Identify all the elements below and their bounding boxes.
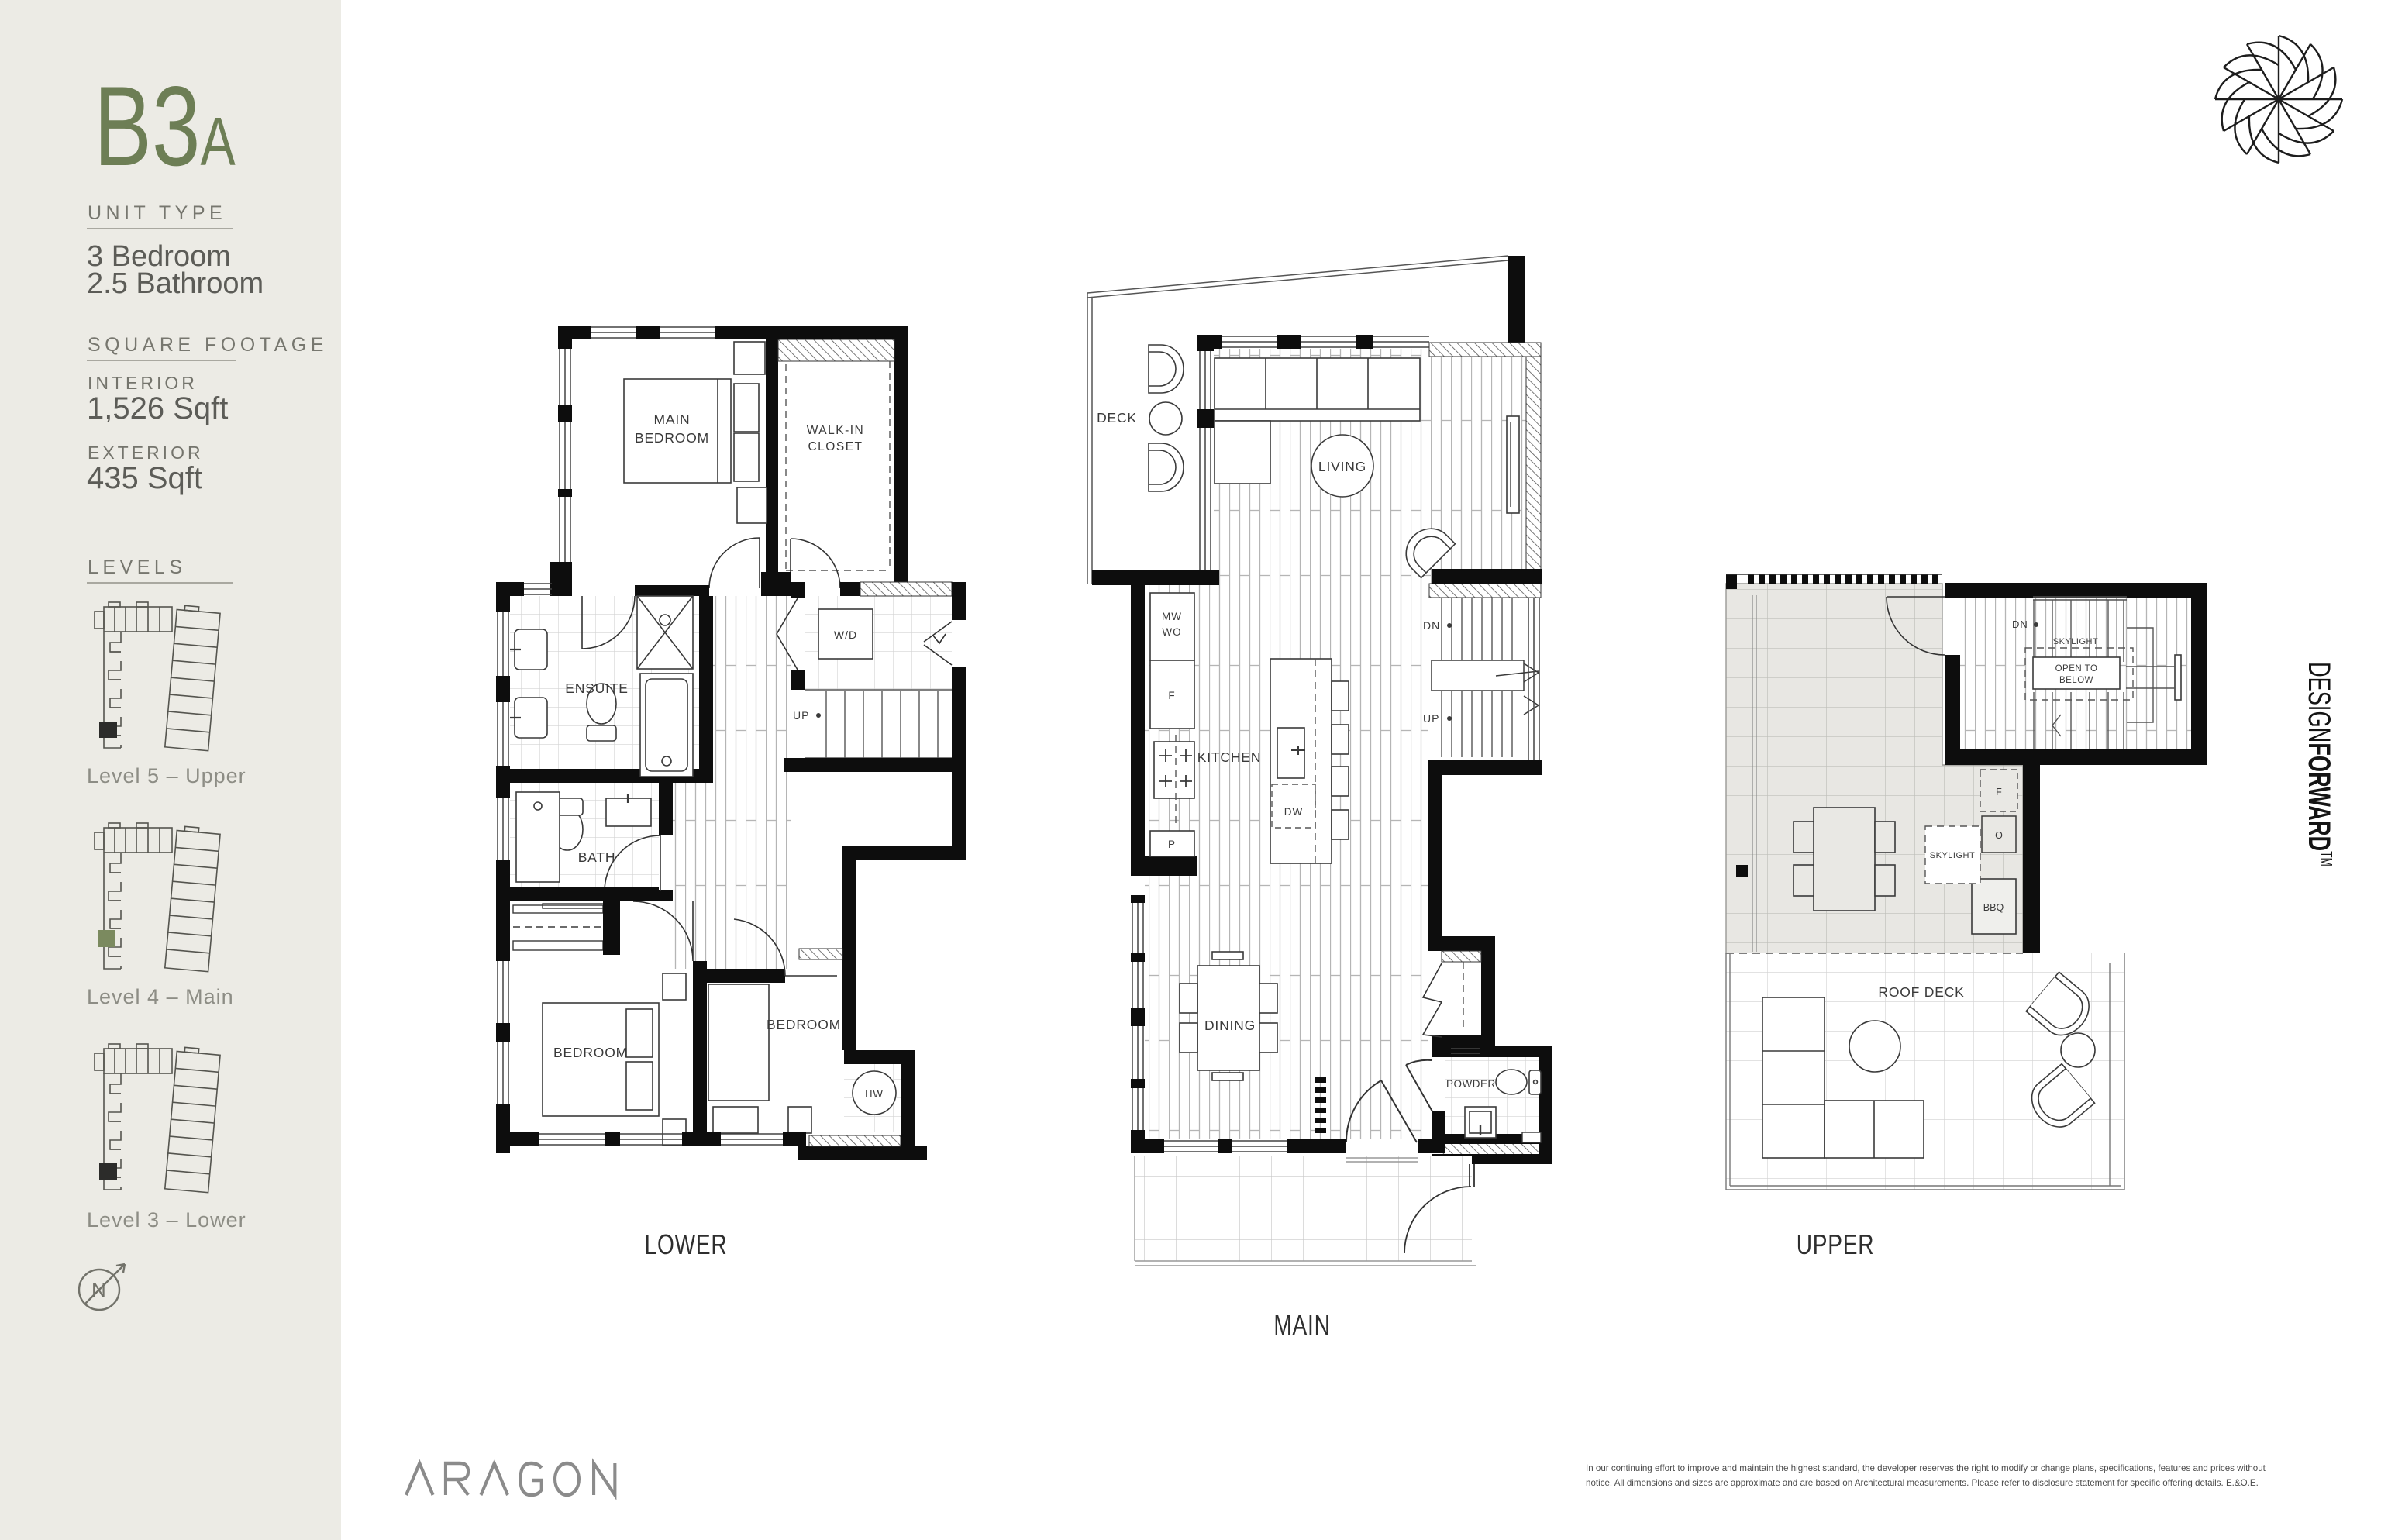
svg-text:BELOW: BELOW (2059, 676, 2093, 685)
svg-text:LIVING: LIVING (1318, 459, 1366, 474)
svg-text:SKYLIGHT: SKYLIGHT (2053, 637, 2098, 646)
svg-text:P: P (1168, 839, 1176, 850)
svg-text:SQUARE FOOTAGE: SQUARE FOOTAGE (88, 334, 328, 356)
svg-text:MAIN: MAIN (654, 412, 691, 427)
svg-text:N: N (91, 1278, 106, 1301)
svg-text:HW: HW (865, 1088, 884, 1100)
svg-text:DESIGNFORWARDTM: DESIGNFORWARDTM (2302, 662, 2336, 866)
svg-text:POWDER: POWDER (1446, 1078, 1496, 1090)
svg-text:DN: DN (1423, 619, 1440, 632)
svg-text:ROOF DECK: ROOF DECK (1878, 984, 1964, 1000)
svg-text:BATH: BATH (578, 849, 616, 865)
svg-text:DINING: DINING (1204, 1018, 1256, 1033)
svg-text:BEDROOM: BEDROOM (767, 1017, 841, 1032)
svg-text:DW: DW (1284, 806, 1304, 818)
svg-text:WALK-IN: WALK-IN (807, 424, 865, 437)
svg-text:notice. All dimensions and siz: notice. All dimensions and sizes are app… (1586, 1478, 2259, 1488)
svg-text:LOWER: LOWER (645, 1229, 728, 1260)
svg-text:EXTERIOR: EXTERIOR (88, 443, 204, 463)
svg-text:F: F (1168, 690, 1175, 701)
svg-text:OPEN TO: OPEN TO (2055, 664, 2098, 674)
svg-text:UNIT TYPE: UNIT TYPE (88, 202, 226, 224)
svg-text:DN: DN (2012, 618, 2028, 630)
svg-text:BEDROOM: BEDROOM (635, 430, 709, 446)
svg-text:2.5 Bathroom: 2.5 Bathroom (87, 267, 264, 300)
svg-text:ENSUITE: ENSUITE (565, 680, 628, 696)
svg-text:UP: UP (793, 709, 809, 722)
svg-text:O: O (1995, 830, 2003, 841)
svg-text:1,526 Sqft: 1,526 Sqft (87, 391, 228, 425)
svg-text:LEVELS: LEVELS (88, 556, 187, 578)
svg-text:BBQ: BBQ (1983, 902, 2004, 913)
svg-text:UPPER: UPPER (1797, 1229, 1875, 1260)
svg-text:KITCHEN: KITCHEN (1197, 749, 1261, 765)
svg-text:Level 3 – Lower: Level 3 – Lower (87, 1208, 246, 1232)
svg-text:MW: MW (1162, 611, 1182, 622)
svg-text:INTERIOR: INTERIOR (88, 373, 198, 393)
svg-text:Level 5 – Upper: Level 5 – Upper (87, 764, 246, 787)
svg-text:WO: WO (1162, 626, 1181, 638)
svg-text:In our continuing effort to im: In our continuing effort to improve and … (1586, 1463, 2266, 1473)
svg-text:F: F (1996, 787, 2002, 798)
svg-text:435 Sqft: 435 Sqft (87, 461, 202, 495)
svg-text:W/D: W/D (834, 629, 857, 641)
svg-text:DECK: DECK (1097, 410, 1137, 425)
svg-text:BEDROOM: BEDROOM (553, 1045, 628, 1060)
svg-text:Level 4 – Main: Level 4 – Main (87, 985, 234, 1008)
svg-text:MAIN: MAIN (1273, 1310, 1330, 1341)
svg-text:SKYLIGHT: SKYLIGHT (1930, 851, 1975, 860)
svg-text:UP: UP (1423, 712, 1439, 725)
svg-text:CLOSET: CLOSET (808, 440, 863, 453)
